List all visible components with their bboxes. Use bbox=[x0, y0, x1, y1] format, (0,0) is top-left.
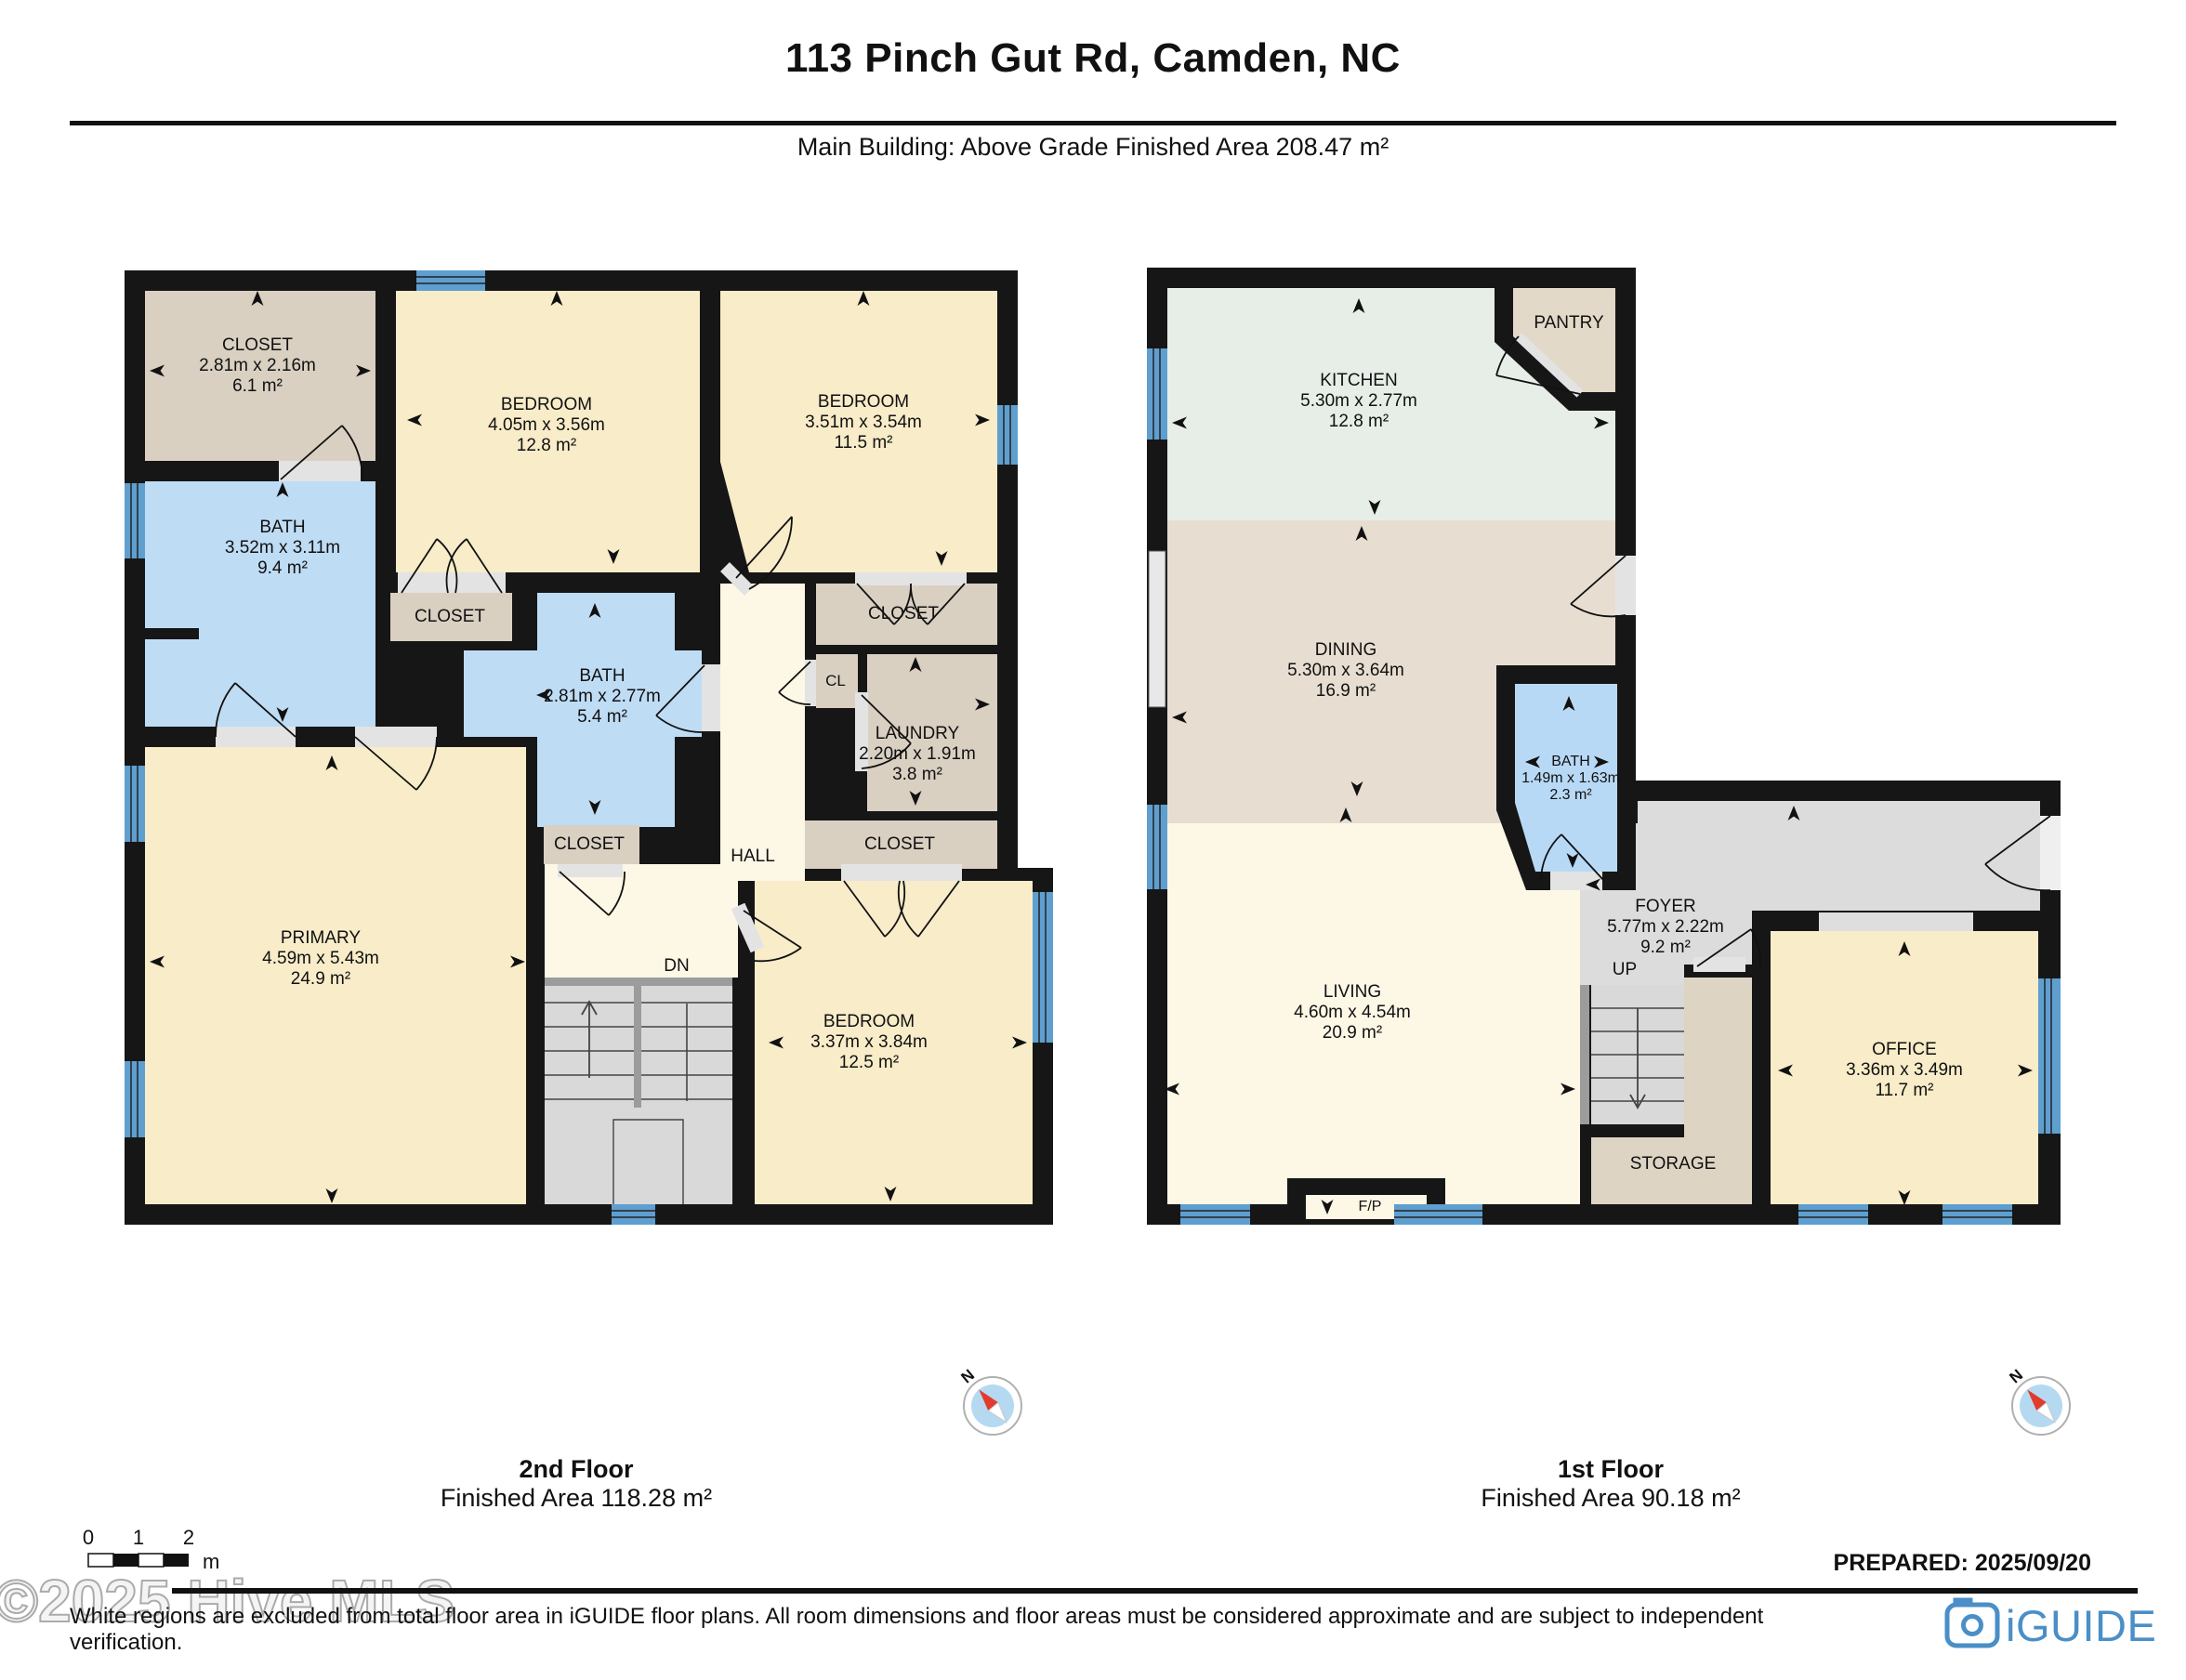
room-label-office: OFFICE3.36m x 3.49m11.7 m² bbox=[1846, 1040, 1963, 1101]
svg-text:1: 1 bbox=[133, 1526, 144, 1549]
room-label-bath: BATH1.49m x 1.63m2.3 m² bbox=[1521, 754, 1620, 804]
floor2-title: 2nd Floor Finished Area 118.28 m² bbox=[441, 1455, 712, 1513]
footer-divider bbox=[172, 1588, 2138, 1594]
room-label-living: LIVING4.60m x 4.54m20.9 m² bbox=[1294, 982, 1411, 1043]
room-label-cl: CL bbox=[825, 671, 846, 691]
room-label-dining: DINING5.30m x 3.64m16.9 m² bbox=[1287, 640, 1404, 702]
svg-text:2: 2 bbox=[183, 1526, 194, 1549]
room-label-bedroom-b: BEDROOM3.51m x 3.54m11.5 m² bbox=[805, 392, 922, 453]
room-label-pantry: PANTRY bbox=[1534, 313, 1603, 334]
iguide-logo: iGUIDE bbox=[1947, 1600, 2156, 1650]
room-label-bath-a: BATH3.52m x 3.11m9.4 m² bbox=[225, 518, 340, 579]
floorplan-graphics: N bbox=[0, 0, 2186, 1680]
stairs-dn-label: DN bbox=[664, 956, 689, 977]
room-label-closet: CLOSET bbox=[868, 604, 939, 624]
room-label-bedroom-a: BEDROOM4.05m x 3.56m12.8 m² bbox=[488, 395, 605, 456]
room-label-kitchen: KITCHEN5.30m x 2.77m12.8 m² bbox=[1300, 371, 1417, 432]
room-label-hall: HALL bbox=[731, 847, 775, 867]
fireplace-label: F/P bbox=[1359, 1199, 1382, 1215]
room-label-closet: CLOSET bbox=[864, 834, 935, 855]
room-label-storage: STORAGE bbox=[1630, 1154, 1717, 1175]
stairs-down bbox=[545, 978, 732, 1204]
prepared-date: PREPARED: 2025/09/20 bbox=[0, 1550, 2091, 1577]
room-label-closet: CLOSET bbox=[415, 607, 485, 627]
svg-text:0: 0 bbox=[83, 1526, 94, 1549]
stairs-up bbox=[1580, 985, 1684, 1137]
compass-icon bbox=[2006, 1365, 2070, 1435]
room-label-bath-b: BATH2.81m x 2.77m5.4 m² bbox=[544, 666, 661, 728]
room-label-laundry: LAUNDRY2.20m x 1.91m3.8 m² bbox=[859, 724, 976, 785]
room-label-bedroom-c: BEDROOM3.37m x 3.84m12.5 m² bbox=[810, 1012, 928, 1073]
compass-icon bbox=[957, 1365, 1021, 1435]
floorplan-page: 113 Pinch Gut Rd, Camden, NC Main Buildi… bbox=[0, 0, 2186, 1680]
room-label-closet-tl: CLOSET2.81m x 2.16m6.1 m² bbox=[199, 335, 316, 397]
svg-text:iGUIDE: iGUIDE bbox=[2006, 1601, 2156, 1650]
floor1-title: 1st Floor Finished Area 90.18 m² bbox=[1481, 1455, 1740, 1513]
disclaimer-text: White regions are excluded from total fl… bbox=[70, 1604, 1836, 1656]
room-label-foyer: FOYER5.77m x 2.22m9.2 m² bbox=[1607, 897, 1724, 958]
room-label-closet: CLOSET bbox=[554, 834, 625, 855]
room-label-primary: PRIMARY4.59m x 5.43m24.9 m² bbox=[262, 928, 379, 990]
stairs-up-label: UP bbox=[1613, 960, 1637, 980]
